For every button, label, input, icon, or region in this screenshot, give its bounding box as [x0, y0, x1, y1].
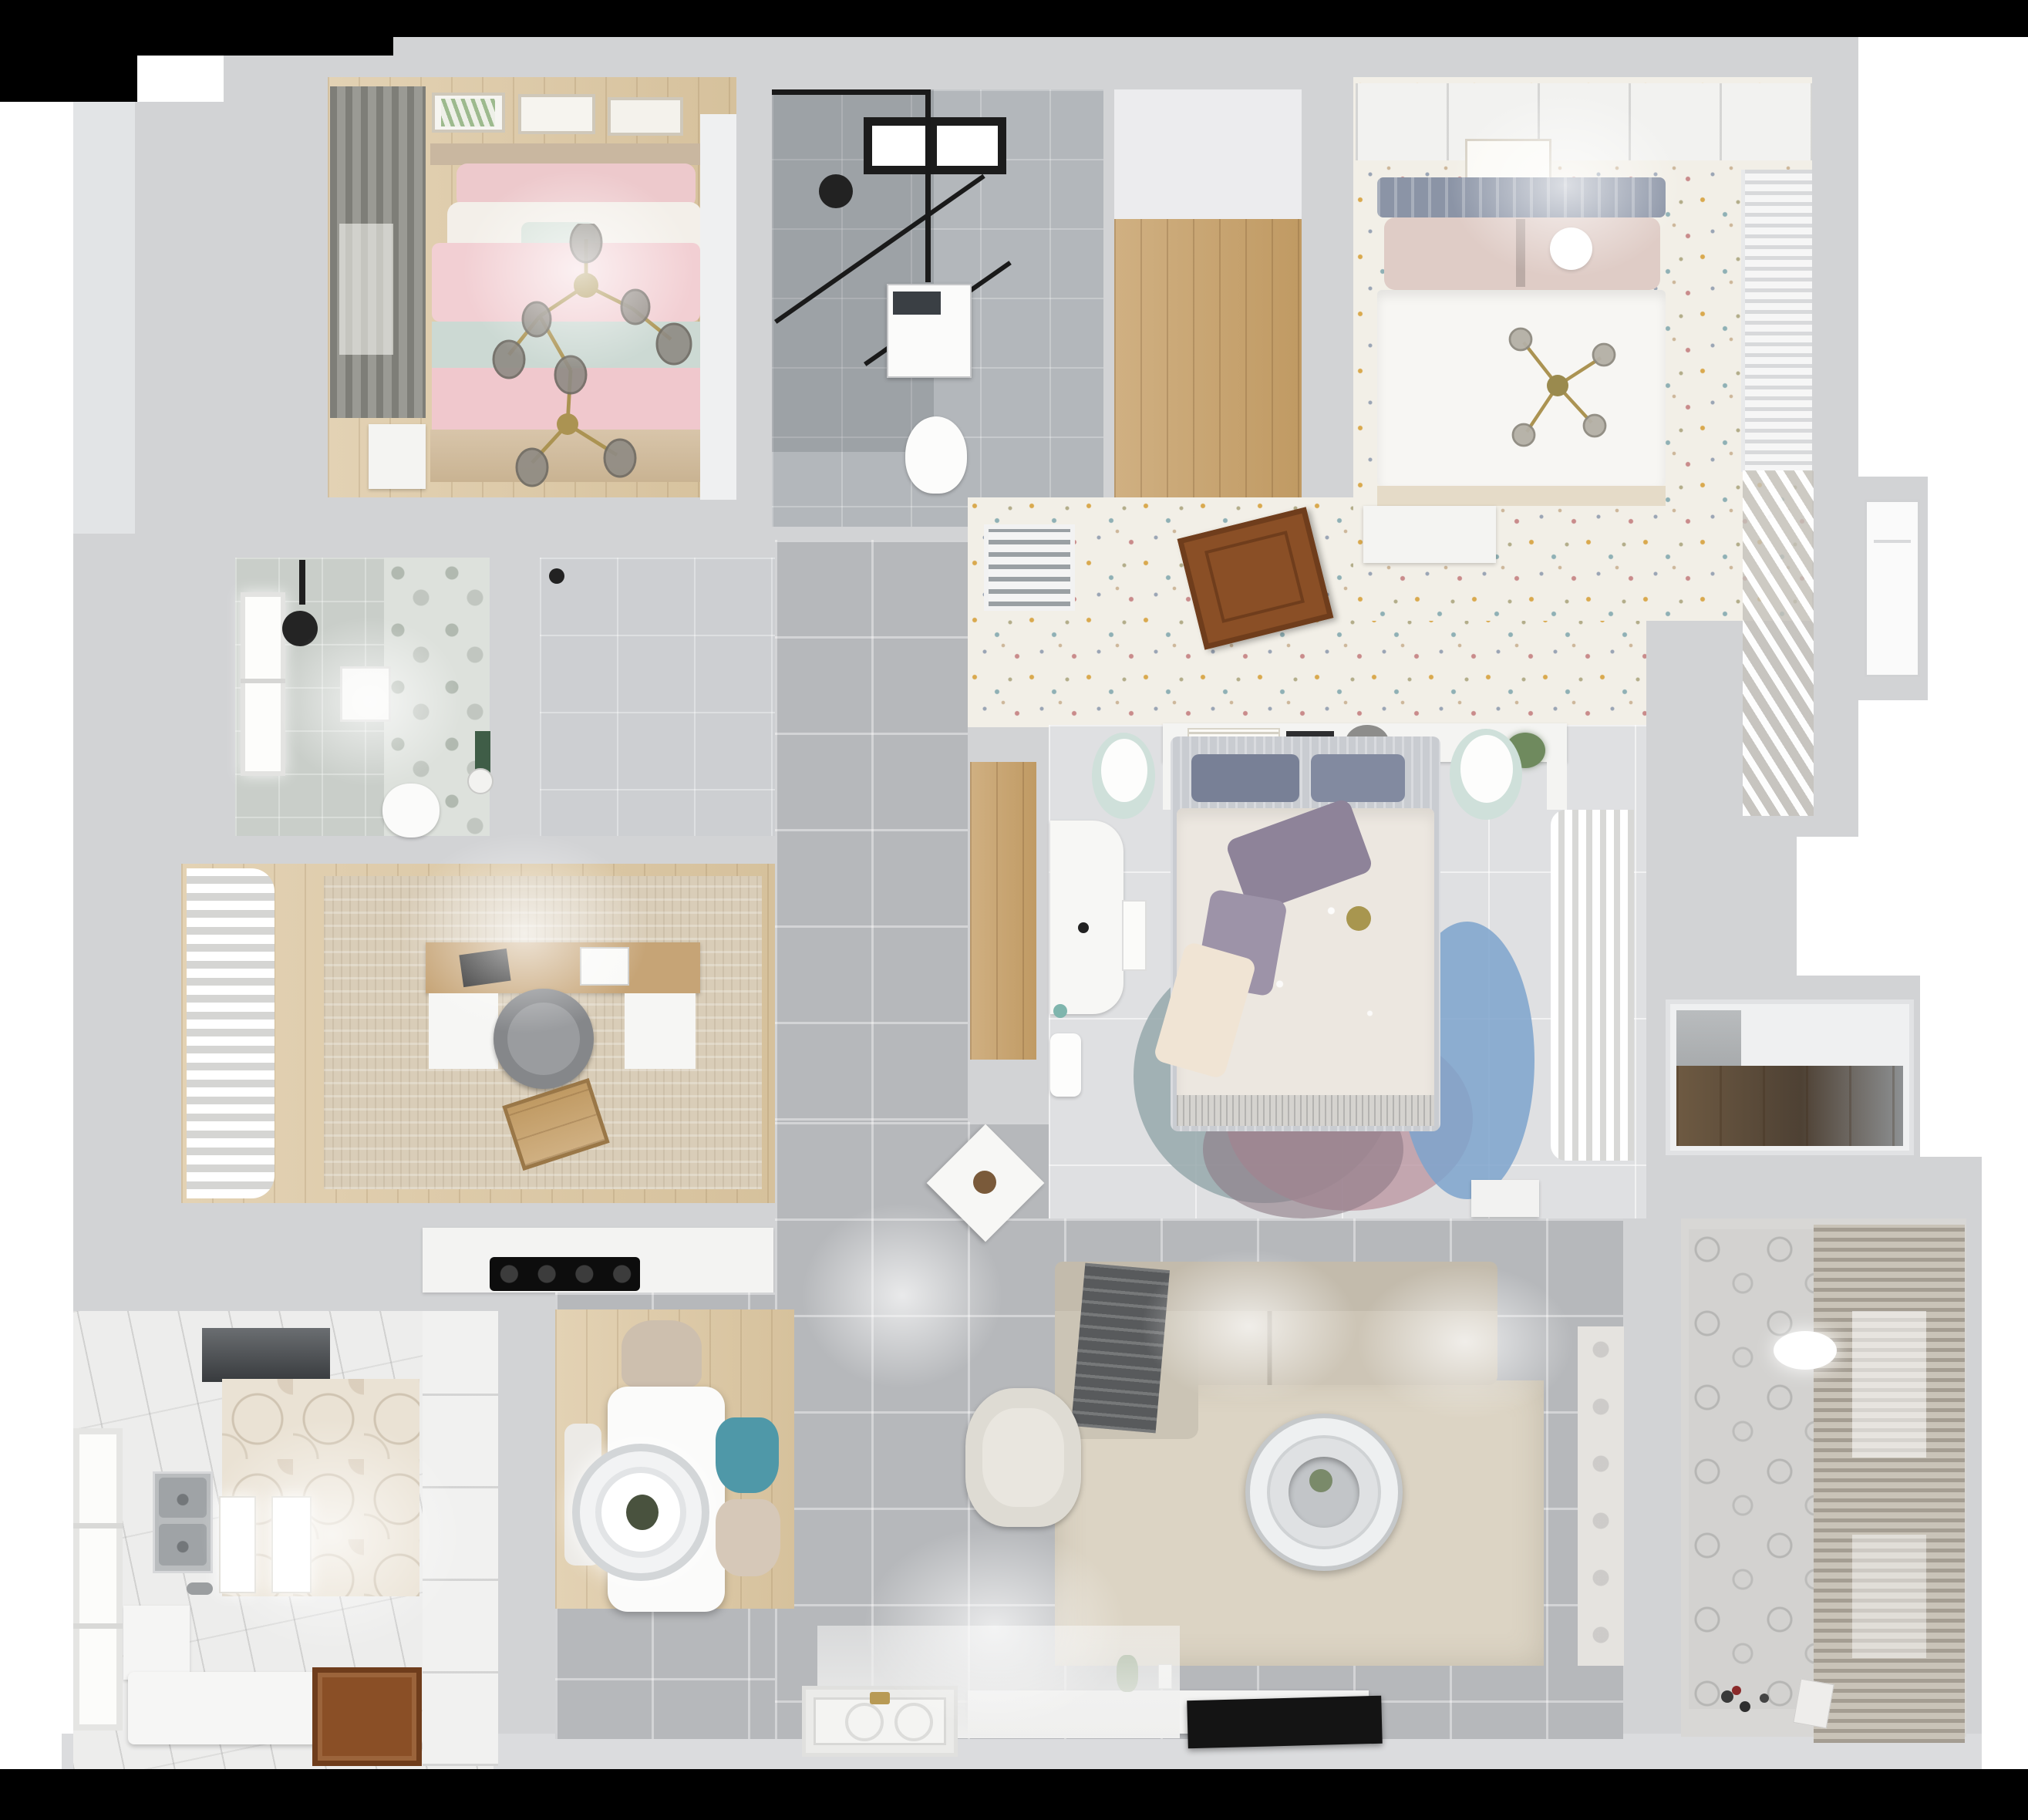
dining-chair-teal — [716, 1417, 779, 1493]
office-chair-seat — [507, 1003, 580, 1075]
art-frame-3 — [608, 97, 683, 136]
dining-chair-top — [622, 1320, 702, 1388]
room-walkin-hall — [1114, 219, 1302, 527]
kitchen-island — [128, 1672, 322, 1744]
sink-basin-2 — [159, 1524, 207, 1566]
tv — [1187, 1696, 1383, 1749]
midbed-gold-dot — [1346, 906, 1371, 931]
closet-niche-upper — [1676, 1010, 1741, 1066]
balcony-blind-window-1 — [1852, 1311, 1926, 1458]
bath2-print — [340, 666, 391, 722]
study-curtains — [187, 868, 275, 1198]
shower-mirror — [819, 174, 853, 208]
master-headboard — [1377, 177, 1666, 217]
letterbox-bottom — [0, 1769, 2028, 1820]
bath2-window-bar — [241, 679, 285, 683]
laptop — [459, 949, 510, 987]
headboard-shelf-rail-right — [1547, 762, 1567, 810]
balcony-ceiling-lamp — [1774, 1331, 1837, 1370]
balcony-blinds — [1814, 1225, 1965, 1743]
bath2-basin — [467, 768, 494, 794]
balcony-threshold-strip — [1578, 1326, 1624, 1666]
coffee-table-hole — [1289, 1457, 1359, 1528]
kitchen-window — [73, 1428, 123, 1731]
exterior-cut — [1797, 837, 1920, 976]
balcony-blind-window-2 — [1852, 1535, 1926, 1658]
chandelier-branch-icon — [463, 224, 709, 501]
nightstand-right-lamp — [1460, 735, 1513, 803]
dining-chair-beige — [716, 1499, 780, 1576]
armchair-seat — [982, 1408, 1064, 1507]
master-bench — [1363, 506, 1496, 563]
midroom-wardrobe-sheer — [1551, 810, 1634, 1161]
coffee-table-plant — [1309, 1469, 1332, 1492]
midroom-bottle — [1053, 1004, 1067, 1018]
closet-niche-wood — [1676, 1066, 1903, 1146]
art-frame-plant — [441, 99, 495, 126]
balcony-toy-2 — [1740, 1701, 1750, 1712]
midroom-chair — [1050, 1033, 1081, 1097]
master-pillow-gap — [1516, 219, 1525, 287]
midroom-drawer — [1122, 900, 1147, 971]
pendant-lamp-plant — [626, 1495, 659, 1530]
balcony-toy-red — [1732, 1686, 1741, 1695]
master-bed-fringe — [1377, 486, 1666, 506]
midbed-pillow-gray-1 — [1191, 754, 1299, 802]
printer — [580, 947, 629, 986]
floor-vent — [984, 524, 1075, 611]
midroom-white-box — [1471, 1180, 1539, 1217]
bath2-window — [241, 592, 285, 776]
kitchen-board-2 — [271, 1496, 312, 1593]
nightstand — [369, 424, 426, 489]
rain-shower-head — [282, 611, 318, 646]
kitchen-window-bar2 — [73, 1623, 123, 1629]
shower-frame-pole — [925, 89, 931, 282]
midbed-fringe — [1177, 1095, 1434, 1126]
shower-frame-rail — [772, 89, 930, 95]
master-sheer-curtain — [1743, 470, 1814, 816]
entry-mat-handle — [870, 1692, 890, 1704]
entry-mat-ring — [845, 1703, 884, 1741]
shower-pipe — [299, 560, 305, 605]
midroom-desk-dot — [1078, 922, 1089, 933]
sink-basin-1 — [159, 1478, 207, 1518]
art-frame-2 — [518, 94, 595, 134]
kitchen-faucet — [187, 1582, 213, 1595]
kitchen-window-bar1 — [73, 1523, 123, 1528]
bedroom-middle-doorway — [970, 762, 1036, 1060]
master-louver-wardrobe — [1741, 170, 1812, 472]
master-exit-door-line — [1874, 540, 1911, 543]
bed-headboard — [430, 143, 702, 165]
kitchen-counter-left — [123, 1606, 190, 1680]
midbed-pillow-gray-2 — [1311, 754, 1405, 802]
toilet — [905, 416, 967, 494]
range-hood — [202, 1328, 330, 1382]
nightstand-left-lamp — [1101, 739, 1147, 802]
washer-panel — [893, 292, 941, 315]
wall-lamp — [549, 568, 564, 584]
room-nook — [540, 558, 775, 836]
balcony-pattern-wall — [1689, 1229, 1814, 1709]
chandelier-cross-icon — [1481, 308, 1635, 463]
sofa-blanket — [1071, 1263, 1170, 1434]
midroom-desk — [1050, 821, 1123, 1014]
outer-wall-highlight — [73, 102, 135, 534]
desk-pedestal-left — [429, 993, 498, 1069]
master-wall-print — [1465, 139, 1551, 182]
corridor-tiles — [775, 540, 968, 1126]
floorplan-render — [0, 0, 2028, 1820]
balcony-toy-3 — [1760, 1694, 1769, 1703]
master-exit-door — [1865, 500, 1920, 677]
master-ball-pillow — [1550, 228, 1592, 270]
window-light — [339, 224, 393, 355]
kitchen-board-1 — [219, 1496, 256, 1593]
side-table-plant — [973, 1171, 996, 1194]
kitchen-cabinet-column — [423, 1311, 498, 1766]
bath2-toilet — [382, 784, 440, 838]
walkin-upper-wall — [1114, 89, 1302, 219]
master-panel-wall — [1356, 83, 1812, 160]
desk-pedestal-right — [625, 993, 696, 1069]
entry-mat-ring-2 — [894, 1703, 933, 1741]
kitchen-door — [312, 1667, 422, 1766]
cooktop — [490, 1257, 640, 1291]
letterbox-top-left-2 — [0, 0, 137, 102]
